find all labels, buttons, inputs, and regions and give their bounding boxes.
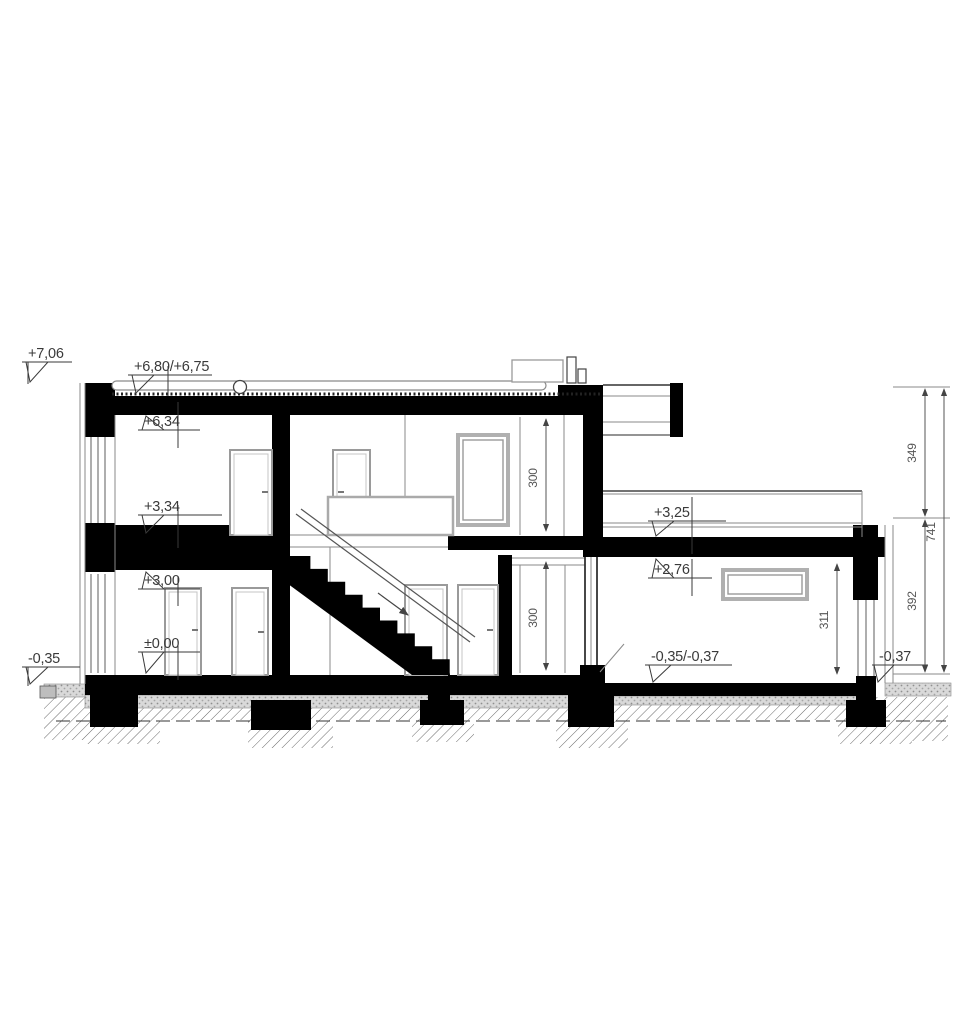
level-label: +3,34 (144, 499, 180, 515)
dim-value: 392 (905, 591, 919, 611)
footing-left (90, 695, 138, 727)
left-parapet (85, 383, 115, 437)
soil-left-slope (44, 697, 90, 740)
soil-right-slope (888, 697, 948, 741)
footing-garage-right (846, 700, 886, 727)
dim-value: 349 (905, 443, 919, 463)
roof-skylight-curb (512, 360, 563, 382)
stair-direction-arrow (378, 593, 408, 615)
dim-value: 741 (924, 522, 938, 542)
stairwell-balustrade (328, 497, 453, 535)
level-label: +6,80/+6,75 (134, 359, 209, 375)
house-ground-slab (85, 675, 603, 695)
level-label: -0,35/-0,37 (651, 649, 719, 665)
level-marker-m035: -0,35 (22, 651, 80, 686)
level-marker-276: +2,76 (648, 559, 712, 596)
main-roof-slab (85, 396, 603, 415)
dim-value: 300 (526, 468, 540, 488)
roof-membrane (112, 381, 546, 390)
dim-value: 300 (526, 608, 540, 628)
footing-stair (420, 700, 464, 725)
level-marker-706: +7,06 (22, 346, 72, 384)
vent-pipe-2 (578, 369, 586, 383)
dim-value: 311 (817, 610, 831, 629)
vent-pipe-1 (567, 357, 576, 383)
level-marker-m037: -0,37 (872, 649, 928, 682)
level-label: +3,25 (654, 505, 690, 521)
right-exterior-paving (885, 683, 951, 696)
blueprint-canvas: +7,06 +6,80/+6,75 +6,34 +3,34 +3,00 (0, 0, 956, 1014)
level-label: ±0,00 (144, 636, 179, 652)
level-marker-m035-m037: -0,35/-0,37 (645, 649, 732, 682)
level-label: +7,06 (28, 346, 64, 362)
footing-interior (251, 700, 311, 730)
house-subbase (85, 695, 603, 708)
garage-right-wall (853, 525, 878, 600)
garage-parapet (603, 491, 862, 537)
canopy-end-post (670, 383, 683, 437)
section-drawing: +7,06 +6,80/+6,75 +6,34 +3,34 +3,00 (0, 0, 956, 1014)
roof-canopy (603, 385, 670, 435)
footing-garage-left (568, 683, 614, 727)
level-label: -0,37 (879, 649, 911, 665)
roof-drain-outlet (234, 381, 247, 394)
level-label: -0,35 (28, 651, 60, 667)
garage-ground-slab (603, 683, 870, 696)
level-label: +6,34 (144, 414, 180, 430)
level-label: +3,00 (144, 573, 180, 589)
interior-wall-upper (272, 415, 290, 535)
terrace-edge-block (40, 686, 56, 698)
garage-subbase (603, 696, 870, 705)
level-label: +2,76 (654, 562, 690, 578)
stair-base (428, 675, 450, 702)
floor-slab-right (448, 536, 603, 550)
house-garage-wall-upper (583, 396, 603, 557)
door-swing-line (600, 644, 624, 672)
stair-hall-wall (498, 555, 512, 675)
garage-roof-slab (603, 537, 885, 557)
